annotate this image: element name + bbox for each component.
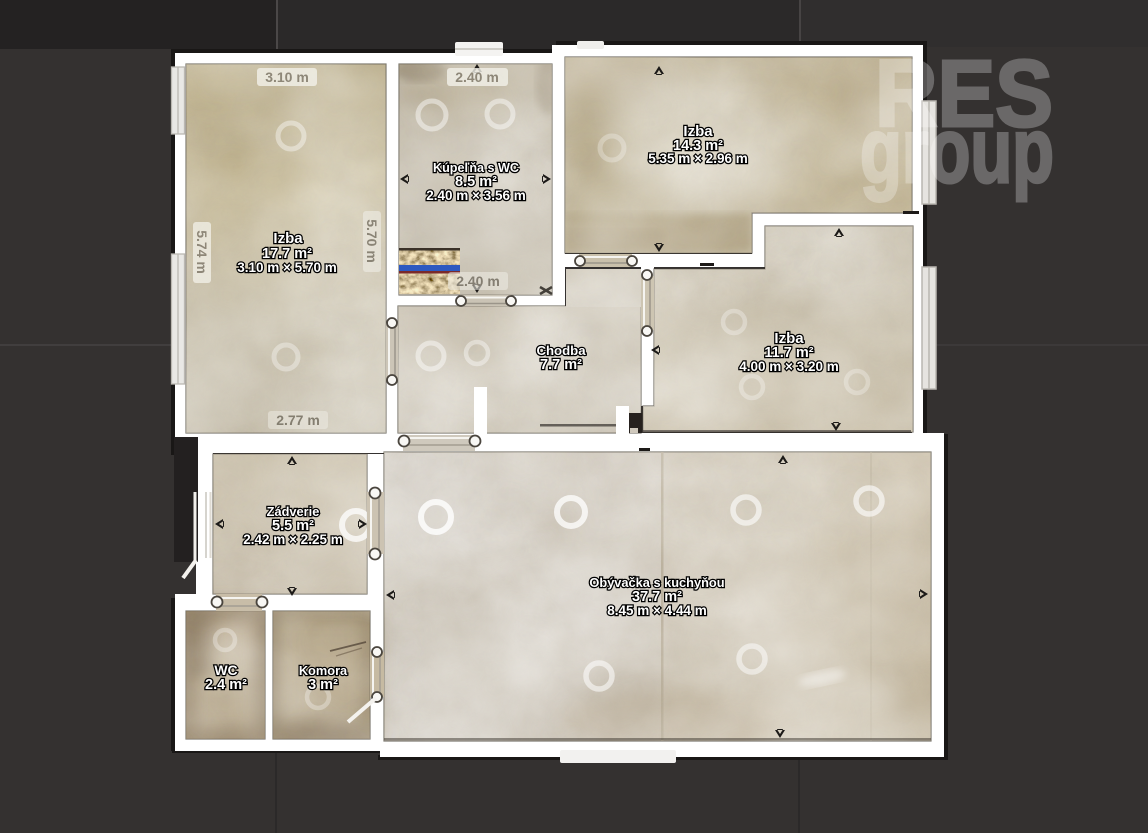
svg-text:3.10 m: 3.10 m	[265, 69, 309, 85]
svg-text:Obývačka s kuchyňou: Obývačka s kuchyňou	[589, 575, 724, 590]
svg-text:Komora: Komora	[299, 663, 348, 678]
svg-text:3 m²: 3 m²	[308, 677, 338, 693]
svg-text:5.74 m: 5.74 m	[194, 230, 210, 274]
svg-text:4.00 m × 3.20 m: 4.00 m × 3.20 m	[739, 359, 838, 374]
svg-text:5.70 m: 5.70 m	[364, 219, 380, 263]
svg-text:group: group	[860, 100, 1054, 202]
svg-text:Kúpeľňa s WC: Kúpeľňa s WC	[433, 161, 519, 175]
svg-text:2.40 m: 2.40 m	[455, 69, 499, 85]
svg-text:WC: WC	[214, 662, 237, 678]
svg-text:5.35 m × 2.96 m: 5.35 m × 2.96 m	[648, 151, 747, 166]
svg-text:2.4 m²: 2.4 m²	[205, 677, 247, 693]
svg-text:Zádverie: Zádverie	[267, 504, 320, 519]
svg-text:2.40 m: 2.40 m	[456, 273, 500, 289]
svg-text:2.42 m × 2.25 m: 2.42 m × 2.25 m	[243, 532, 342, 547]
svg-text:3.10 m × 5.70 m: 3.10 m × 5.70 m	[237, 260, 336, 275]
svg-text:8.45 m × 4.44 m: 8.45 m × 4.44 m	[607, 603, 706, 618]
svg-text:7.7 m²: 7.7 m²	[540, 357, 582, 373]
svg-text:2.40 m × 3.56 m: 2.40 m × 3.56 m	[426, 188, 525, 203]
svg-text:2.77 m: 2.77 m	[276, 412, 320, 428]
svg-text:Chodba: Chodba	[536, 343, 586, 358]
svg-text:Izba: Izba	[273, 230, 303, 247]
